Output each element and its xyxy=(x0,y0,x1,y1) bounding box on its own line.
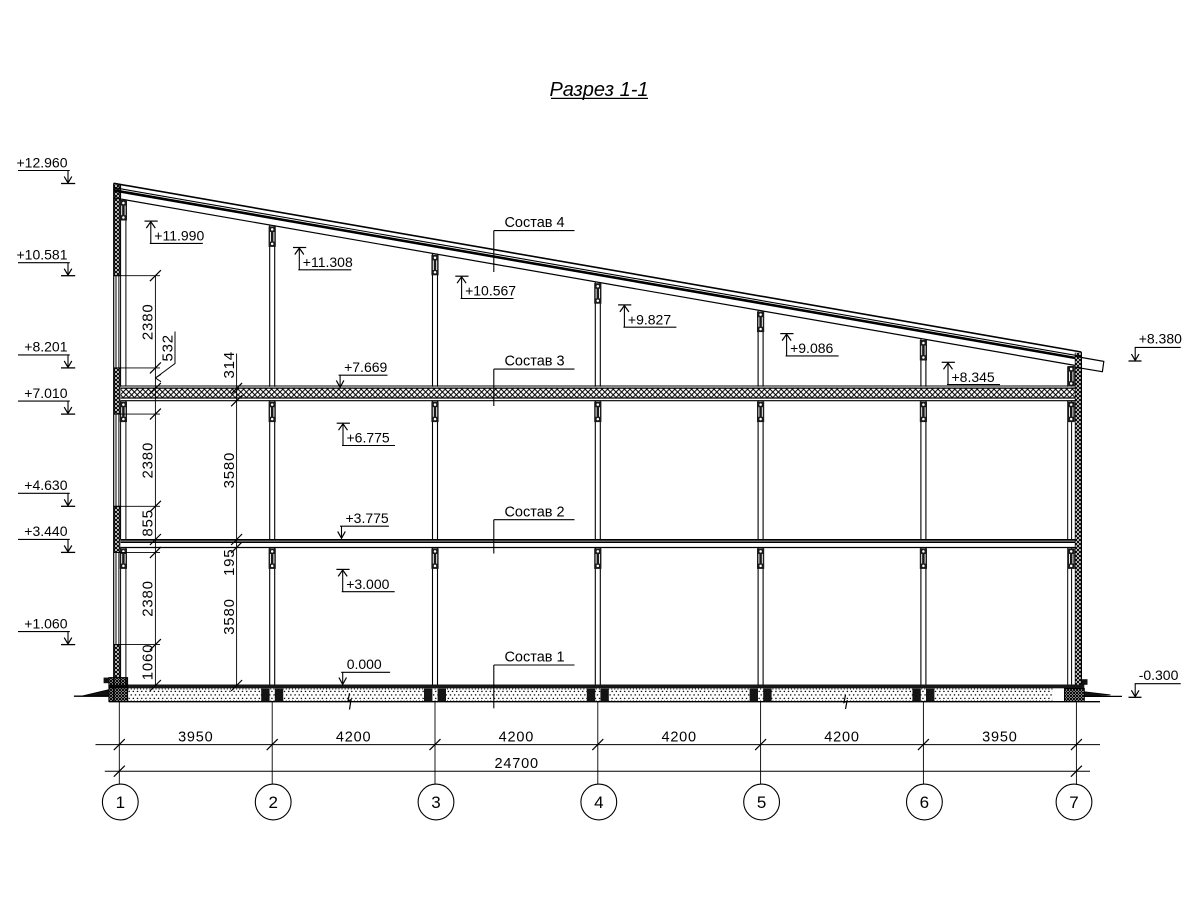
svg-text:+11.308: +11.308 xyxy=(303,254,353,270)
svg-text:+9.086: +9.086 xyxy=(790,340,833,356)
svg-text:+10.567: +10.567 xyxy=(465,283,516,299)
svg-text:Разрез 1-1: Разрез 1-1 xyxy=(549,79,648,101)
svg-text:4200: 4200 xyxy=(336,730,371,746)
svg-text:4200: 4200 xyxy=(824,730,859,746)
svg-text:Состав 4: Состав 4 xyxy=(504,215,564,231)
svg-text:2380: 2380 xyxy=(139,304,156,341)
svg-text:4200: 4200 xyxy=(499,730,534,746)
svg-text:+10.581: +10.581 xyxy=(17,247,68,263)
svg-text:3580: 3580 xyxy=(221,452,238,489)
svg-text:1060: 1060 xyxy=(139,644,156,681)
svg-text:Состав 2: Состав 2 xyxy=(504,504,564,520)
svg-text:2380: 2380 xyxy=(139,580,156,617)
svg-text:855: 855 xyxy=(139,509,156,536)
svg-text:+6.775: +6.775 xyxy=(347,430,390,446)
svg-text:+3.440: +3.440 xyxy=(24,523,67,539)
svg-text:-0.300: -0.300 xyxy=(1139,667,1179,683)
svg-text:6: 6 xyxy=(920,793,929,812)
svg-text:5: 5 xyxy=(757,793,766,812)
svg-text:+9.827: +9.827 xyxy=(628,311,671,327)
svg-text:+3.000: +3.000 xyxy=(346,576,389,592)
svg-text:3: 3 xyxy=(431,793,440,812)
svg-text:7: 7 xyxy=(1069,793,1078,812)
svg-text:+8.380: +8.380 xyxy=(1139,331,1182,347)
svg-text:314: 314 xyxy=(221,351,238,378)
svg-text:4200: 4200 xyxy=(661,730,696,746)
svg-text:1: 1 xyxy=(116,793,125,812)
svg-text:+3.775: +3.775 xyxy=(346,510,389,526)
svg-text:+12.960: +12.960 xyxy=(17,154,68,170)
svg-text:+4.630: +4.630 xyxy=(24,477,67,493)
svg-text:2: 2 xyxy=(268,793,277,812)
svg-text:3580: 3580 xyxy=(221,598,238,635)
svg-text:+7.669: +7.669 xyxy=(344,359,387,375)
svg-text:24700: 24700 xyxy=(495,756,539,772)
svg-text:+8.345: +8.345 xyxy=(952,369,995,385)
svg-text:195: 195 xyxy=(221,549,238,576)
svg-text:2380: 2380 xyxy=(139,442,156,479)
svg-text:+1.060: +1.060 xyxy=(24,615,67,631)
svg-text:+7.010: +7.010 xyxy=(24,385,67,401)
svg-text:Состав 1: Состав 1 xyxy=(504,650,564,666)
svg-text:+8.201: +8.201 xyxy=(24,339,67,355)
svg-text:4: 4 xyxy=(594,793,603,812)
svg-text:532: 532 xyxy=(160,334,177,361)
svg-text:3950: 3950 xyxy=(982,730,1017,746)
svg-text:0.000: 0.000 xyxy=(347,656,382,672)
svg-text:3950: 3950 xyxy=(178,730,213,746)
svg-text:+11.990: +11.990 xyxy=(154,228,204,244)
svg-text:Состав 3: Состав 3 xyxy=(504,354,564,370)
